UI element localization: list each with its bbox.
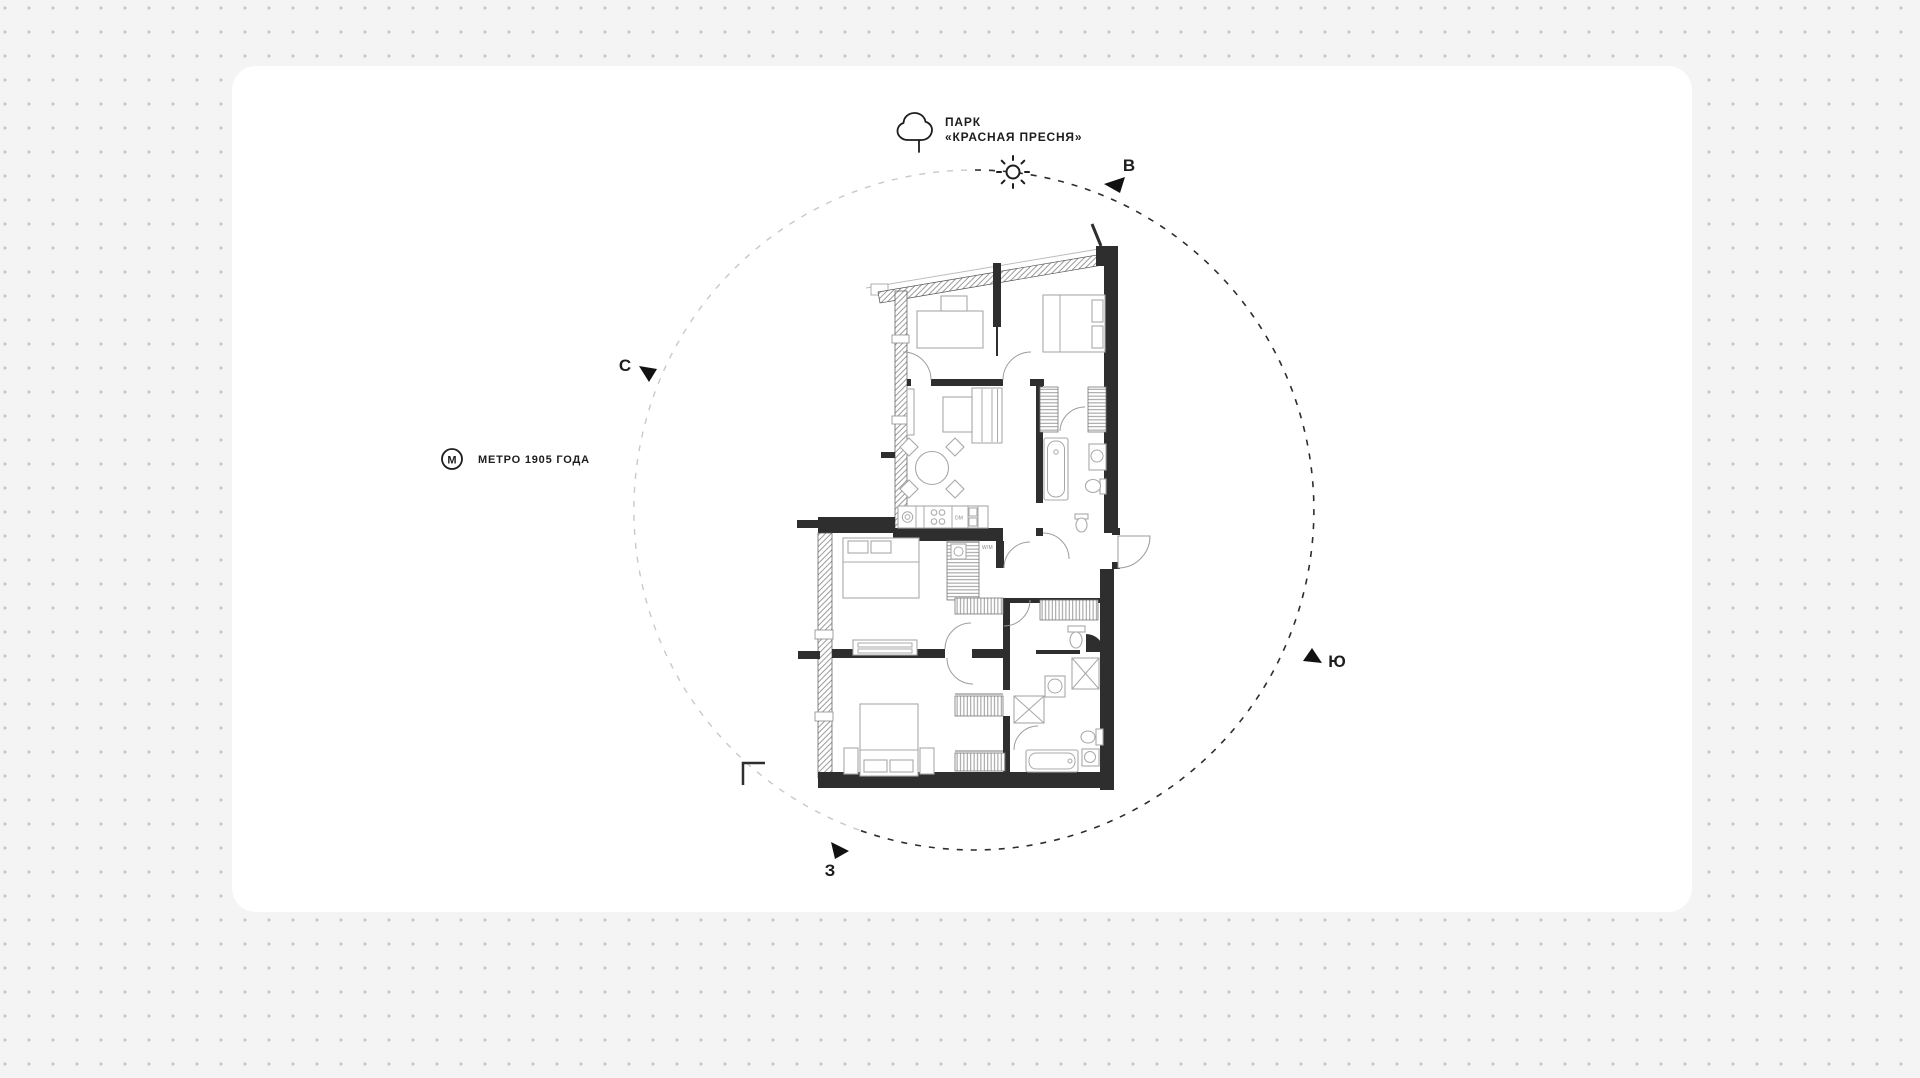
dishwasher-label: DM bbox=[955, 516, 963, 522]
bathroom-2 bbox=[1014, 626, 1104, 772]
section-corner-mark bbox=[743, 763, 765, 785]
toilet-3 bbox=[1081, 731, 1095, 743]
tree-icon bbox=[898, 113, 933, 152]
compass-north-marker-icon bbox=[639, 366, 657, 382]
compass-east-marker-icon bbox=[1104, 177, 1125, 193]
room-bedroom-2 bbox=[843, 538, 919, 655]
washing-machine bbox=[951, 544, 966, 559]
page: { "colors": { "page_bg": "#f4f4f4", "dot… bbox=[0, 0, 1920, 1078]
park-label-line1: ПАРК bbox=[945, 115, 981, 129]
room-bedroom-1 bbox=[1043, 295, 1105, 352]
metro-symbol: М bbox=[447, 455, 456, 467]
compass-south-marker-icon bbox=[1303, 648, 1322, 663]
compass-west-label: З bbox=[825, 861, 836, 880]
room-living bbox=[900, 388, 1002, 498]
park-label-line2: «КРАСНАЯ ПРЕСНЯ» bbox=[945, 130, 1082, 144]
compass-west-marker-icon bbox=[831, 842, 849, 859]
compass-south-label: Ю bbox=[1328, 652, 1346, 671]
room-study bbox=[917, 296, 983, 348]
toilet bbox=[1086, 480, 1101, 493]
site-plan-figure: ПАРК «КРАСНАЯ ПРЕСНЯ» М МЕТРО 1905 ГОДА … bbox=[0, 0, 1920, 1078]
compass-north-label: С bbox=[619, 356, 631, 375]
park-landmark: ПАРК «КРАСНАЯ ПРЕСНЯ» bbox=[898, 113, 1083, 152]
bathroom-1 bbox=[1044, 438, 1106, 532]
washer-label: W/M bbox=[982, 545, 993, 551]
kitchen: DM bbox=[898, 506, 988, 528]
metro-label: МЕТРО 1905 ГОДА bbox=[478, 454, 590, 466]
toilet-2 bbox=[1070, 632, 1082, 648]
compass-east-label: В bbox=[1123, 156, 1135, 175]
metro-landmark: М МЕТРО 1905 ГОДА bbox=[442, 449, 590, 469]
dining-table bbox=[916, 452, 949, 485]
sun-icon bbox=[997, 156, 1029, 188]
entrance-door bbox=[1118, 536, 1150, 568]
room-bedroom-3 bbox=[844, 704, 934, 776]
floor-plan: DM W/M bbox=[797, 224, 1150, 790]
metro-icon: М bbox=[442, 449, 462, 469]
